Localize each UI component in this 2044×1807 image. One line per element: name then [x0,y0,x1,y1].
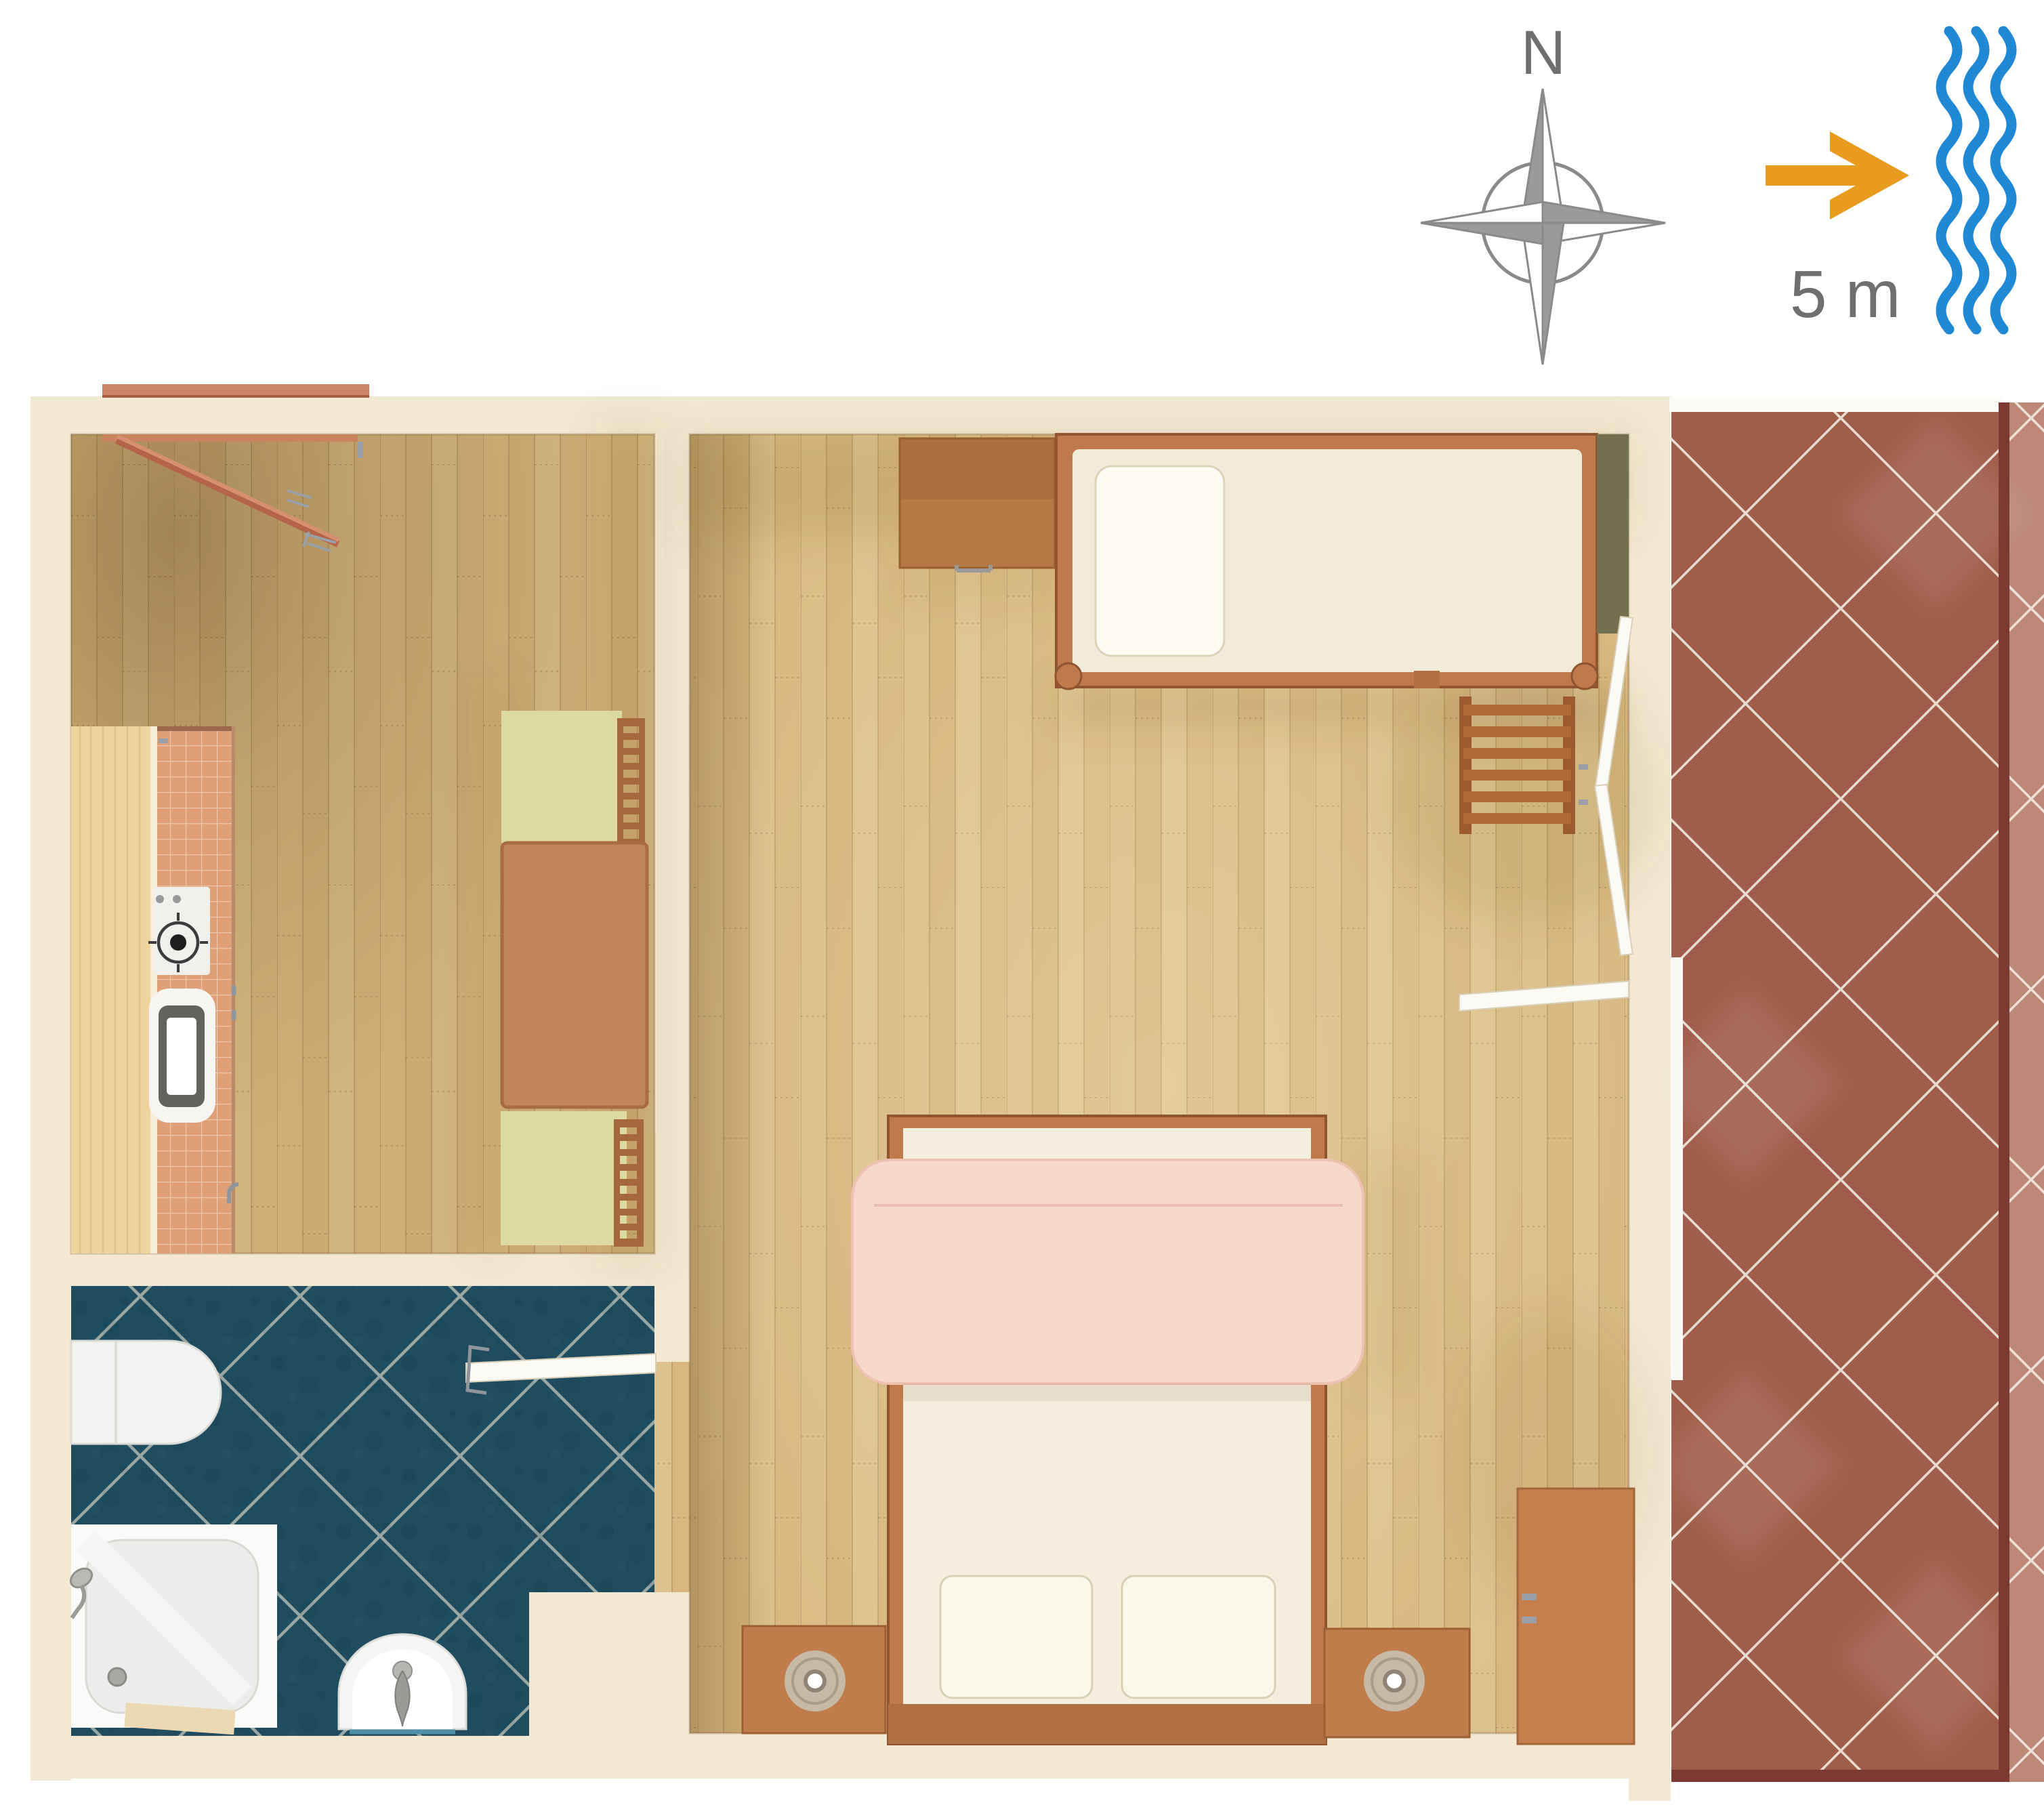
svg-text:N: N [1521,18,1566,87]
svg-text:5 m: 5 m [1790,257,1900,331]
